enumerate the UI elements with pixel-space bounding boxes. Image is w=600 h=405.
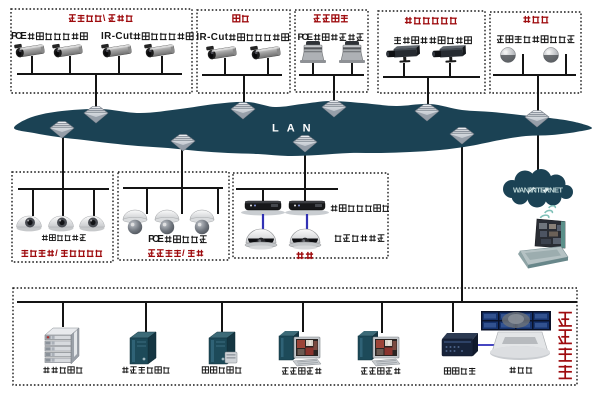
svg-text:/: / [182,248,185,259]
svg-text:\: \ [103,13,106,24]
svg-text:IR-Cut: IR-Cut [101,31,133,42]
svg-text:WAN/INTERNET: WAN/INTERNET [513,186,563,195]
svg-text:POE: POE [148,234,164,245]
svg-text:LAN: LAN [272,123,319,135]
svg-text:POE: POE [11,31,27,42]
svg-text:IR-Cut: IR-Cut [196,32,228,43]
svg-text:/: / [55,248,58,259]
